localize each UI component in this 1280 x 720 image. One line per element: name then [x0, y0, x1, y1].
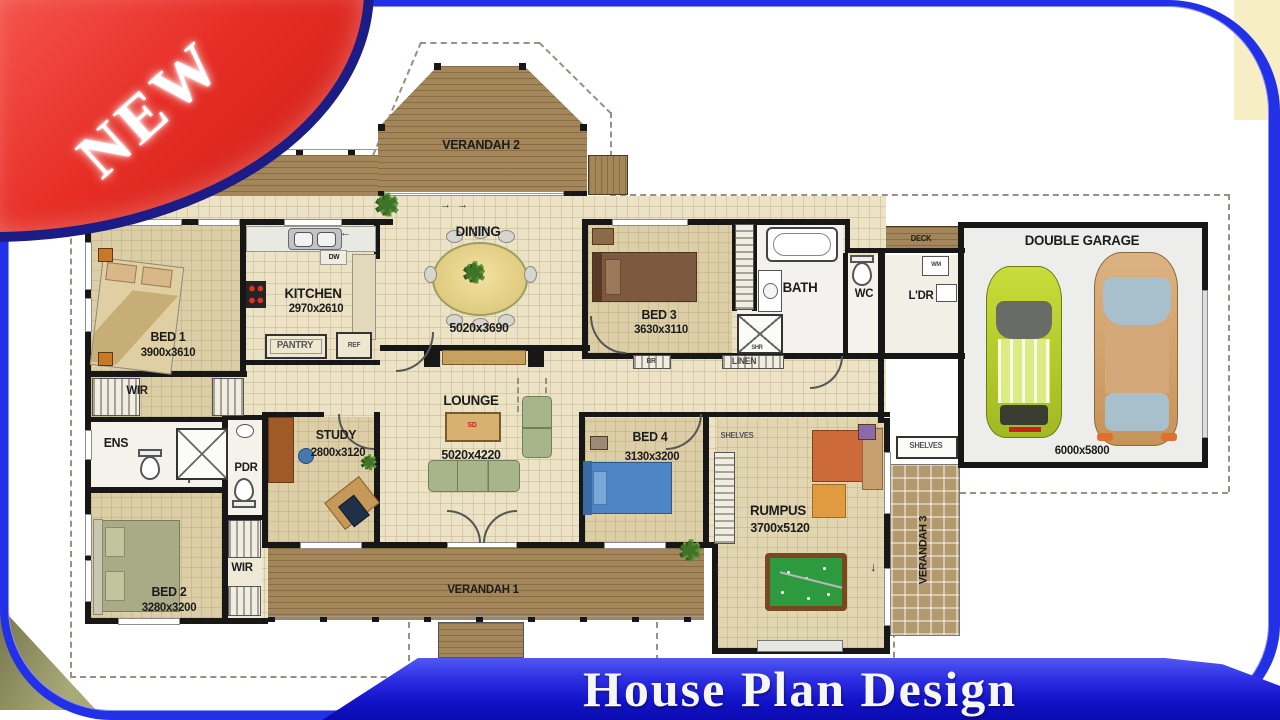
room-label-wir2: WIR	[231, 561, 252, 573]
wall	[880, 253, 885, 359]
wir2-shelves	[228, 586, 261, 616]
wall	[222, 618, 268, 624]
room-size-kitchen: 2970x2610	[289, 302, 344, 314]
label-deck: DECK	[911, 235, 931, 243]
desk	[268, 417, 294, 483]
room-size-lounge: 5020x4220	[441, 448, 500, 461]
verandah2-deck	[378, 66, 587, 195]
car-roof	[998, 339, 1050, 403]
sofa-icon	[428, 460, 520, 492]
verandah1-steps	[438, 622, 524, 658]
bed-icon	[592, 252, 697, 302]
window	[884, 568, 891, 626]
window	[604, 542, 666, 549]
wir2-shelves	[228, 520, 261, 558]
room-size-study: 2800x3120	[311, 446, 366, 458]
rumpus-cabinet	[812, 484, 846, 518]
wall	[703, 412, 709, 548]
entry-arrow-icon: → →	[440, 200, 468, 211]
room-size-dining: 5020x3690	[449, 321, 508, 334]
car-rear-window	[1105, 393, 1169, 431]
deck-post	[580, 124, 587, 131]
bathtub	[766, 227, 838, 262]
plant-icon: ✱	[680, 540, 700, 564]
shower	[176, 428, 228, 480]
roof-dashed-line	[420, 42, 540, 44]
cooktop	[246, 281, 266, 308]
car-taillight	[1161, 433, 1177, 441]
toilet-icon	[234, 478, 254, 502]
app-promo-image: ✱	[0, 0, 1280, 720]
banner-title: House Plan Design	[430, 660, 1170, 718]
roof-dashed-line	[1228, 194, 1230, 492]
window	[300, 542, 362, 549]
room-label-kitchen: KITCHEN	[284, 286, 341, 300]
wir1-robes	[212, 378, 244, 416]
room-size-bed3: 3630x3110	[634, 323, 688, 335]
title-banner: House Plan Design	[322, 658, 1280, 720]
window	[118, 618, 180, 625]
wall	[85, 417, 228, 422]
roof-dashed-line	[960, 492, 1228, 494]
window	[85, 560, 92, 602]
car-icon-green	[986, 266, 1062, 438]
car-taillight	[1097, 433, 1113, 441]
sofa-icon	[522, 396, 552, 458]
wall	[845, 248, 965, 253]
window	[85, 298, 92, 332]
bed-pillow	[105, 571, 125, 601]
wall	[85, 487, 228, 493]
room-label-verandah2: VERANDAH 2	[442, 138, 519, 151]
bed-headboard	[593, 253, 602, 301]
bed-headboard	[583, 461, 592, 515]
room-label-lounge: LOUNGE	[443, 393, 498, 407]
basin	[763, 283, 778, 299]
room-label-garage: DOUBLE GARAGE	[1025, 233, 1140, 247]
hall-robe	[735, 224, 754, 310]
room-size-garage: 6000x5800	[1055, 444, 1110, 456]
car-rear-window	[1000, 405, 1048, 425]
window	[612, 219, 688, 226]
toilet-tank	[850, 255, 874, 263]
toilet-icon	[852, 262, 872, 286]
car-icon-tan	[1094, 252, 1178, 446]
wall	[958, 222, 964, 468]
wall	[582, 353, 845, 359]
bed-pillow	[605, 259, 621, 295]
hall-shelves	[714, 452, 735, 544]
table-plant-icon: ✱	[464, 262, 484, 286]
window	[85, 430, 92, 460]
buffet-seat	[442, 350, 526, 365]
room-label-bath: BATH	[783, 280, 818, 294]
label-ref: REF	[348, 342, 360, 349]
wall	[246, 360, 380, 365]
window	[85, 514, 92, 556]
room-label-ldr: L'DR	[908, 289, 933, 301]
label-pantry: PANTRY	[277, 341, 313, 351]
room-size-bed2: 3280x3200	[142, 601, 197, 613]
dining-chair	[498, 230, 515, 243]
room-label-bed4: BED 4	[633, 430, 668, 443]
car-taillight	[1009, 427, 1041, 432]
pool-felt	[770, 558, 842, 606]
bathtub-inner	[773, 233, 831, 256]
wall	[845, 353, 965, 359]
toilet-tank	[232, 500, 256, 508]
room-label-wir1: WIR	[126, 384, 147, 396]
label-shelves2: SHELVES	[910, 442, 943, 450]
room-label-pdr: PDR	[234, 461, 257, 473]
room-label-study: STUDY	[316, 428, 356, 441]
room-label-bed3: BED 3	[642, 308, 677, 321]
room-size-bed1: 3900x3610	[141, 346, 196, 358]
window-arrow-icon: ↓	[714, 560, 721, 573]
sliding-door	[384, 191, 564, 196]
window	[884, 452, 891, 514]
side-table	[858, 424, 876, 440]
wall	[843, 253, 848, 359]
car-windshield	[1103, 277, 1171, 325]
bed-headboard	[93, 519, 103, 615]
window-arrow-icon: ↓	[870, 560, 877, 573]
bed-icon	[588, 462, 672, 514]
room-label-verandah3: VERANDAH 3	[919, 516, 930, 585]
label-shr: SHR	[751, 345, 762, 351]
room-label-wc: WC	[855, 287, 873, 299]
wall	[958, 462, 1208, 468]
garage-door	[1202, 290, 1208, 438]
room-label-verandah1: VERANDAH 1	[447, 583, 518, 595]
toilet-icon	[140, 456, 160, 480]
bed-pillow	[593, 471, 607, 505]
room-label-dining: DINING	[456, 224, 501, 238]
bedside-table	[98, 352, 113, 366]
label-br: BR	[646, 358, 655, 365]
room-size-bed4: 3130x3200	[625, 450, 680, 462]
room-label-rumpus: RUMPUS	[750, 503, 806, 517]
pdr-basin	[236, 424, 254, 438]
wall	[582, 219, 588, 359]
dining-chair	[524, 266, 537, 283]
verandah2-steps	[588, 155, 628, 195]
bed-pillow	[105, 527, 125, 557]
car-windshield	[996, 301, 1052, 339]
dining-chair	[424, 266, 437, 283]
room-label-bed1: BED 1	[151, 330, 186, 343]
deck-post	[434, 63, 441, 70]
label-linen: LINEN	[732, 357, 756, 366]
wall-pier	[528, 345, 544, 367]
new-ribbon: NEW	[0, 0, 400, 270]
bath-vanity	[758, 270, 782, 312]
wall	[579, 412, 890, 417]
wall	[958, 222, 1208, 228]
toilet-tank	[138, 449, 162, 457]
rumpus-step	[757, 640, 843, 652]
room-size-rumpus: 3700x5120	[750, 521, 809, 534]
car-roof	[1105, 325, 1169, 393]
deck-post	[519, 63, 526, 70]
room-label-bed2: BED 2	[152, 585, 187, 598]
wall	[374, 412, 380, 546]
opening-dashed	[517, 378, 519, 412]
label-shelves1: SHELVES	[721, 432, 754, 440]
label-wm: WM	[931, 262, 941, 268]
side-table	[590, 436, 608, 450]
roof-dashed-line	[70, 198, 72, 678]
laundry-tub	[936, 284, 957, 302]
label-sd: SD	[468, 422, 477, 429]
room-label-ens: ENS	[104, 436, 129, 449]
side-table	[592, 228, 614, 245]
pool-table	[765, 553, 847, 611]
